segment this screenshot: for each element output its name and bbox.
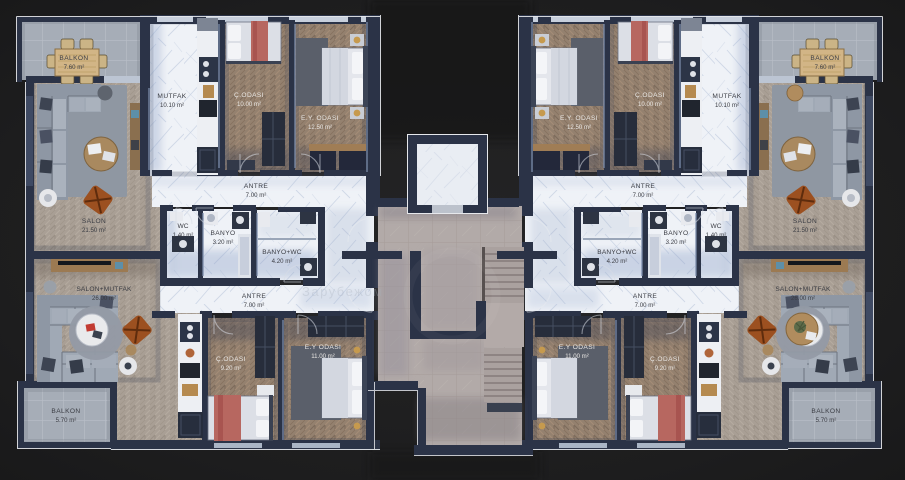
svg-text:7.00 m²: 7.00 m² [633, 192, 654, 199]
svg-text:MUTFAK: MUTFAK [712, 93, 741, 100]
svg-text:Ç.ODASI: Ç.ODASI [635, 92, 665, 99]
svg-text:7.00 m²: 7.00 m² [635, 302, 656, 309]
svg-text:11.00 m²: 11.00 m² [565, 353, 589, 360]
svg-text:ANTRE: ANTRE [242, 293, 267, 300]
svg-text:10.00 m²: 10.00 m² [237, 101, 261, 108]
svg-text:SALON: SALON [793, 218, 817, 225]
svg-text:BALKON: BALKON [810, 55, 839, 62]
svg-text:11.00 m²: 11.00 m² [311, 353, 335, 360]
svg-text:ANTRE: ANTRE [633, 293, 658, 300]
svg-text:7.60 m²: 7.60 m² [815, 64, 836, 71]
svg-text:BALKON: BALKON [59, 55, 88, 62]
svg-text:9.20 m²: 9.20 m² [221, 365, 242, 372]
svg-text:Зарубежом: Зарубежом [302, 284, 384, 299]
svg-text:WC: WC [178, 223, 189, 230]
svg-text:4.20 m²: 4.20 m² [272, 258, 293, 265]
svg-text:10.00 m²: 10.00 m² [638, 101, 662, 108]
svg-text:1.40 m²: 1.40 m² [173, 232, 194, 239]
svg-text:SALON+MUTFAK: SALON+MUTFAK [76, 286, 132, 293]
svg-text:E.Y ODASI: E.Y ODASI [559, 344, 595, 351]
svg-text:BANYO+WC: BANYO+WC [597, 249, 637, 256]
svg-text:ANTRE: ANTRE [244, 183, 269, 190]
svg-text:5.70 m²: 5.70 m² [56, 417, 77, 424]
svg-text:21.50 m²: 21.50 m² [793, 227, 817, 234]
svg-text:Ç.ODASI: Ç.ODASI [650, 356, 680, 363]
svg-text:12.50 m²: 12.50 m² [308, 124, 332, 131]
svg-text:E.Y ODASI: E.Y ODASI [305, 344, 341, 351]
svg-text:BALKON: BALKON [811, 408, 840, 415]
svg-text:3.20 m²: 3.20 m² [213, 239, 234, 246]
svg-text:3.20 m²: 3.20 m² [666, 239, 687, 246]
svg-text:E.Y. ODASI: E.Y. ODASI [560, 115, 598, 122]
svg-text:26.00 m²: 26.00 m² [92, 295, 116, 302]
svg-text:BANYO+WC: BANYO+WC [262, 249, 302, 256]
svg-text:MUTFAK: MUTFAK [157, 93, 186, 100]
svg-text:Ç.ODASI: Ç.ODASI [234, 92, 264, 99]
svg-text:1.40 m²: 1.40 m² [706, 232, 727, 239]
svg-text:21.50 m²: 21.50 m² [82, 227, 106, 234]
svg-text:5.70 m²: 5.70 m² [816, 417, 837, 424]
svg-text:BANYO: BANYO [210, 230, 235, 237]
svg-text:7.60 m²: 7.60 m² [64, 64, 85, 71]
svg-text:9.20 m²: 9.20 m² [655, 365, 676, 372]
svg-text:BANYO: BANYO [663, 230, 688, 237]
svg-text:Ç.ODASI: Ç.ODASI [216, 356, 246, 363]
svg-text:SALON: SALON [82, 218, 106, 225]
svg-text:ANTRE: ANTRE [631, 183, 656, 190]
svg-text:10.10 m²: 10.10 m² [715, 102, 739, 109]
svg-text:7.00 m²: 7.00 m² [244, 302, 265, 309]
svg-text:4.20 m²: 4.20 m² [607, 258, 628, 265]
svg-text:WC: WC [711, 223, 722, 230]
svg-text:SALON+MUTFAK: SALON+MUTFAK [775, 286, 831, 293]
svg-text:26.00 m²: 26.00 m² [791, 295, 815, 302]
svg-text:BALKON: BALKON [51, 408, 80, 415]
svg-text:E.Y. ODASI: E.Y. ODASI [301, 115, 339, 122]
svg-text:12.50 m²: 12.50 m² [567, 124, 591, 131]
svg-text:7.00 m²: 7.00 m² [246, 192, 267, 199]
svg-text:10.10 m²: 10.10 m² [160, 102, 184, 109]
